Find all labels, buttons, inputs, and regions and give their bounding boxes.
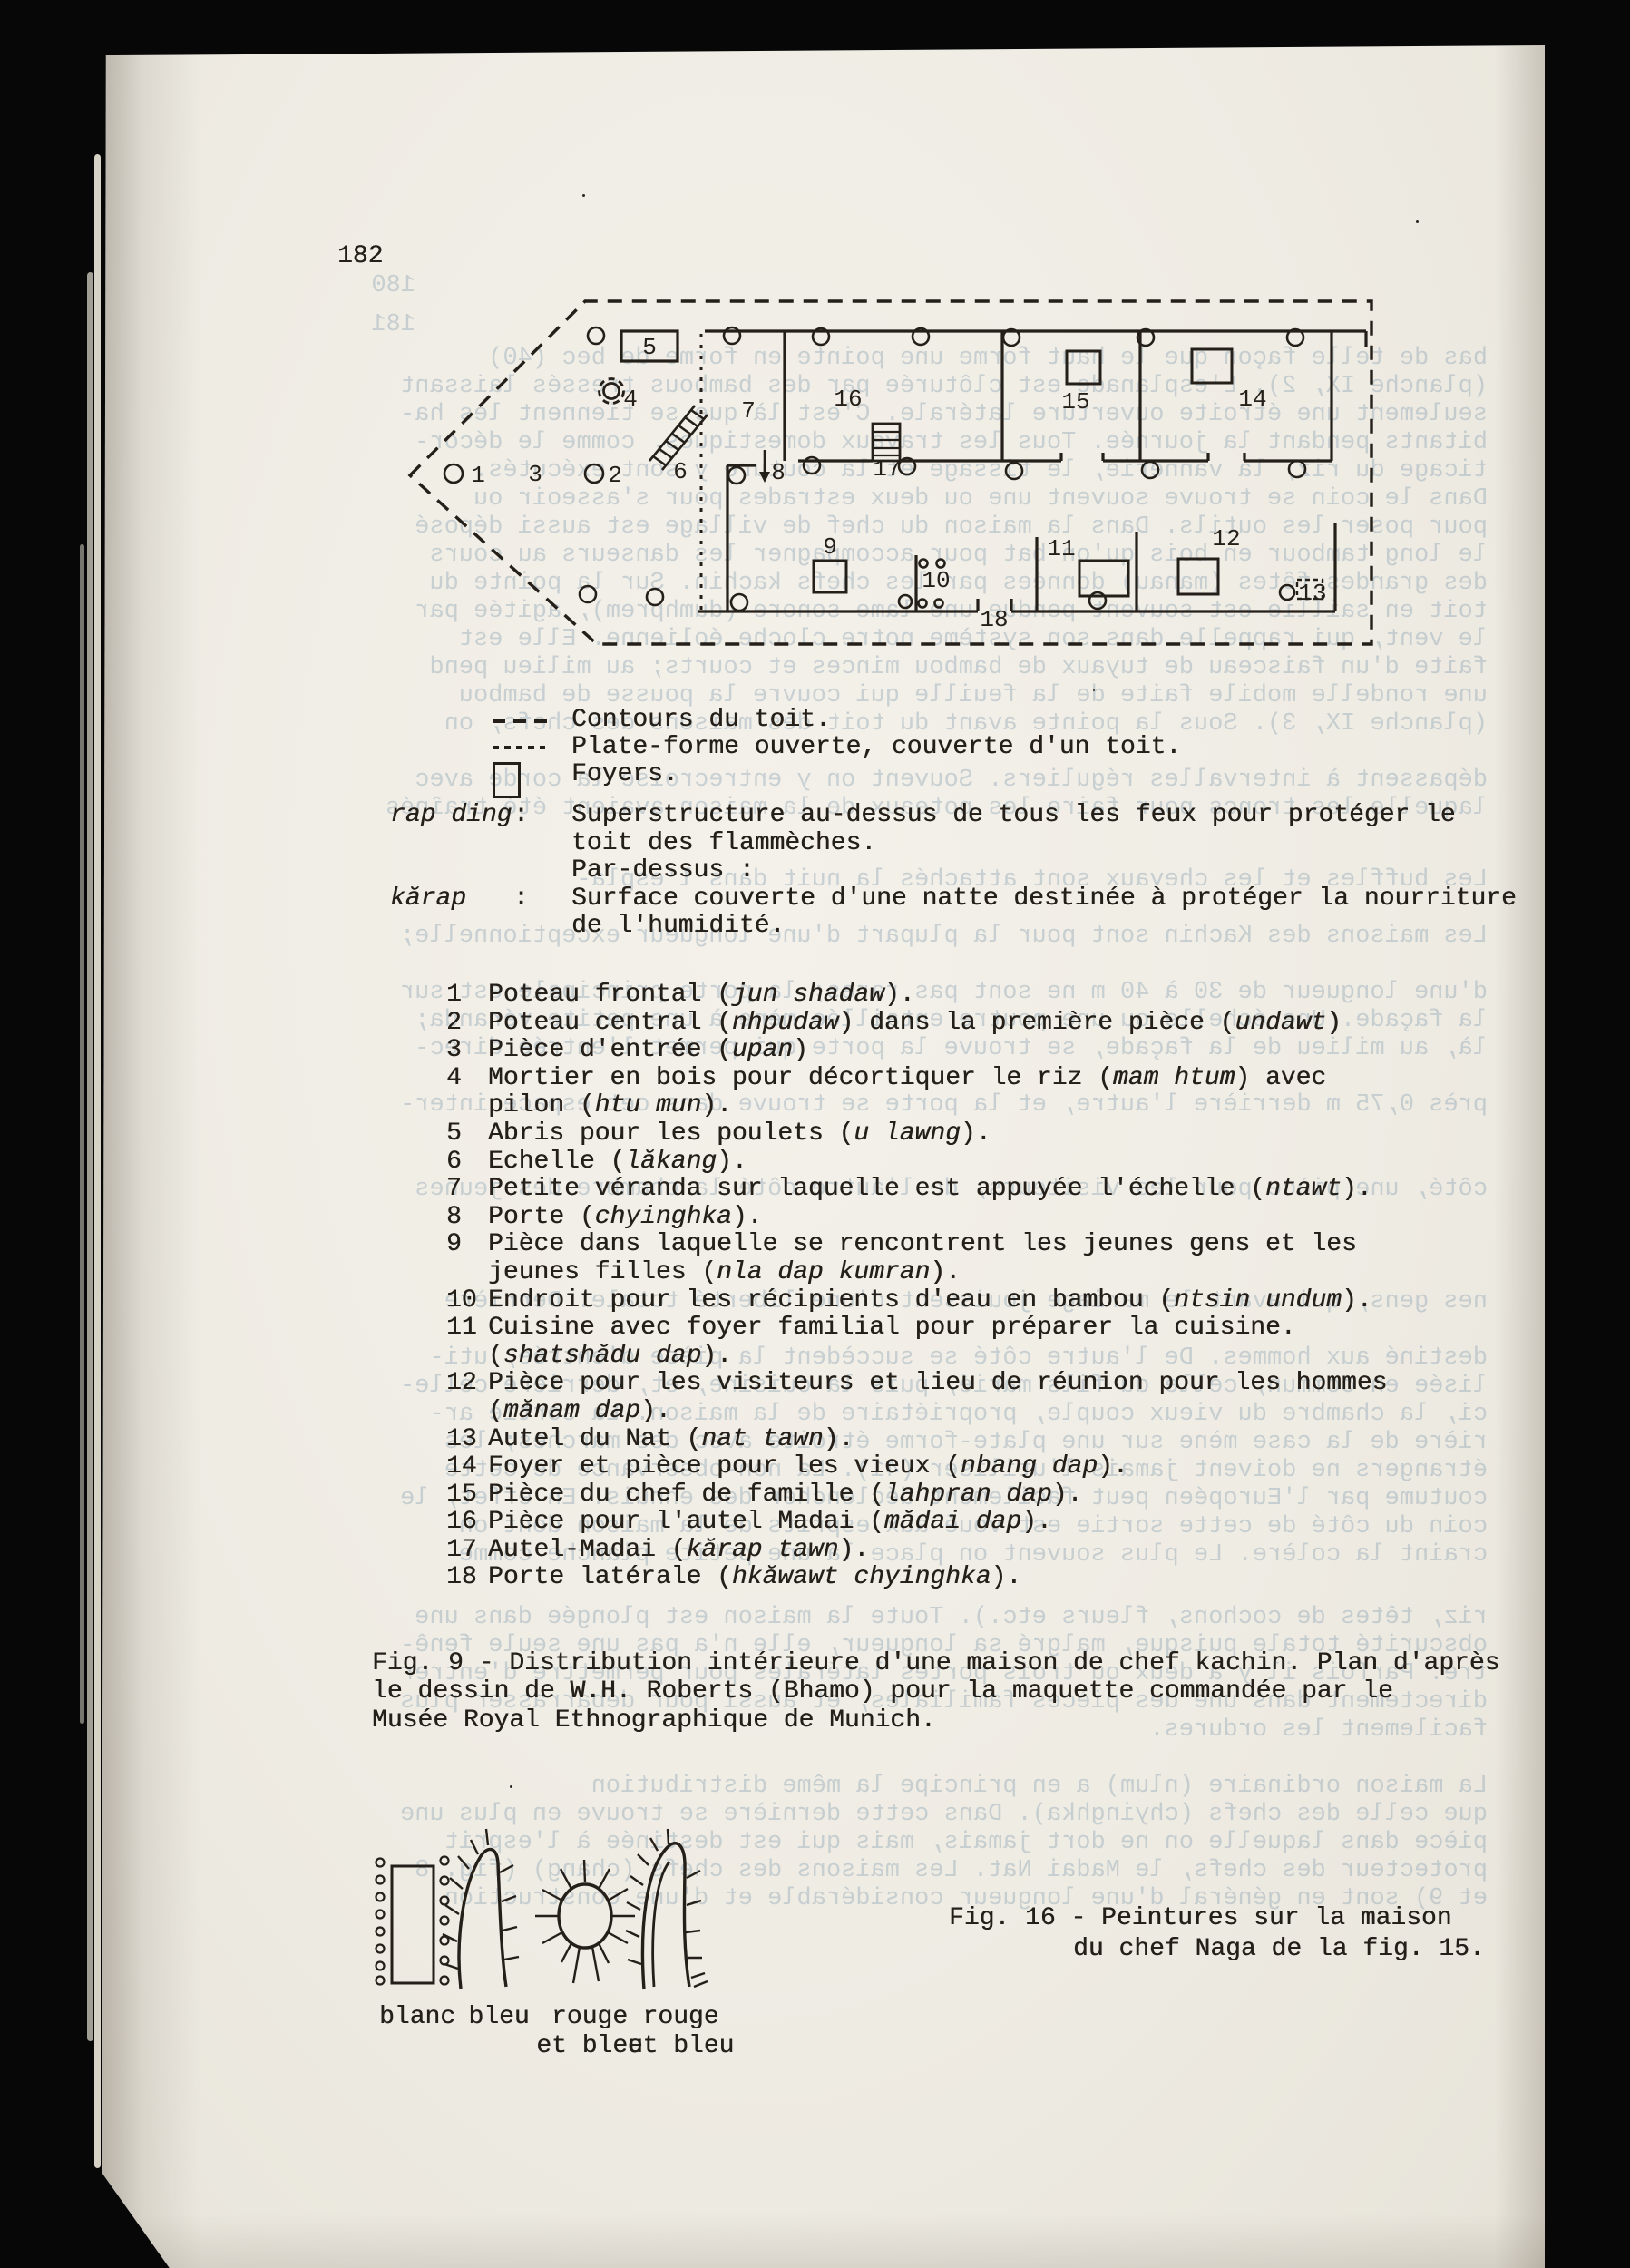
term-def-line: Par-dessus :	[571, 857, 1456, 885]
legend-item-number: 4	[446, 1065, 477, 1093]
term-def-line: de l'humidité.	[571, 913, 1517, 941]
legend-item-text: Poteau central (nhpudaw) dans la premièr…	[488, 1010, 1342, 1038]
legend-item-text: (mănam dap).	[488, 1398, 671, 1426]
symbol-legend: Contours du toit. Plate-forme ouverte, c…	[493, 707, 1490, 803]
caption-line: Fig. 9 - Distribution intérieure d'une m…	[372, 1649, 1515, 1677]
hearth-room12	[1178, 559, 1218, 594]
platform-dash-symbol	[493, 746, 558, 749]
legend-item-number: 3	[446, 1037, 477, 1065]
legend-item-row: 2Poteau central (nhpudaw) dans la premiè…	[446, 1010, 1517, 1038]
legend-item-text: Autel du Nat (nat tawn).	[488, 1426, 854, 1454]
legend-item-number	[446, 1343, 477, 1371]
legend-item-number	[446, 1092, 477, 1120]
legend-item-number: 5	[446, 1120, 477, 1149]
legend-item-row: 12Pièce pour les visiteurs et lieu de ré…	[446, 1370, 1517, 1398]
plan-number-12: 12	[1212, 525, 1240, 552]
plan-number-4: 4	[623, 386, 638, 413]
legend-item-text: Cuisine avec foyer familial pour prépare…	[488, 1315, 1296, 1343]
legend-row-hearth: Foyers.	[493, 761, 1490, 803]
legend-label: Foyers.	[571, 761, 678, 789]
legend-item-row: 1Poteau frontal (jun shadaw).	[446, 982, 1517, 1010]
plan-number-16: 16	[834, 386, 862, 413]
legend-item-row: 16Pièce pour l'autel Madai (mădai dap).	[446, 1509, 1517, 1537]
caption-line: Musée Royal Ethnographique de Munich.	[372, 1706, 1515, 1735]
fig16-caption-line2: du chef Naga de la fig. 15.	[1073, 1936, 1485, 1964]
term-row-karap: kărap : Surface couverte d'une natte des…	[390, 885, 1497, 941]
legend-item-number: 18	[446, 1564, 477, 1592]
term-legend: rap ding : Superstructure au-dessus de t…	[390, 802, 1497, 941]
legend-item-text: Petite véranda sur laquelle est appuyée …	[488, 1176, 1372, 1204]
legend-item-number: 6	[446, 1149, 477, 1177]
legend-item-number: 7	[446, 1176, 477, 1204]
legend-item-row: 17Autel-Madai (kărap tawn).	[446, 1537, 1517, 1565]
motif-rouge-bleu-oval	[535, 1860, 635, 1983]
legend-item-row: 10Endroit pour les récipients d'eau en b…	[446, 1287, 1517, 1315]
legend-item-text: Echelle (lăkang).	[488, 1149, 747, 1177]
plan-number-6: 6	[673, 458, 688, 485]
legend-item-row: 7Petite véranda sur laquelle est appuyée…	[446, 1176, 1517, 1204]
legend-item-number: 13	[446, 1426, 477, 1454]
legend-item-text: Porte (chyinghka).	[488, 1204, 762, 1232]
fig16-caption-line1: Fig. 16 - Peintures sur la maison	[949, 1905, 1452, 1933]
legend-item-text: Pièce pour les visiteurs et lieu de réun…	[488, 1370, 1387, 1398]
legend-item-number: 2	[446, 1010, 477, 1038]
legend-label: Plate-forme ouverte, couverte d'un toit.	[571, 734, 1181, 762]
fig9-caption: Fig. 9 - Distribution intérieure d'une m…	[372, 1649, 1515, 1735]
legend-item-number: 16	[446, 1509, 477, 1537]
term-row-rap-ding: rap ding : Superstructure au-dessus de t…	[390, 802, 1497, 885]
term-def-line: Superstructure au-dessus de tous les feu…	[571, 802, 1456, 830]
hearth-room14	[1192, 349, 1232, 383]
legend-item-row: 14Foyer et pièce pour les vieux (nbang d…	[446, 1453, 1517, 1481]
term-word: rap ding	[390, 802, 513, 830]
legend-item-text: Porte latérale (hkăwawt chyinghka).	[488, 1564, 1021, 1592]
legend-item-text: Autel-Madai (kărap tawn).	[488, 1537, 869, 1565]
legend-item-row: 11Cuisine avec foyer familial pour prépa…	[446, 1315, 1517, 1343]
house-walls	[698, 331, 1366, 611]
plan-number-14: 14	[1238, 386, 1266, 413]
legend-label: Contours du toit.	[571, 707, 831, 735]
numbered-legend-list: 1Poteau frontal (jun shadaw).2Poteau cen…	[446, 982, 1517, 1592]
legend-item-text: Pièce dans laquelle se rencontrent les j…	[488, 1231, 1357, 1259]
legend-item-row: 6Echelle (lăkang).	[446, 1149, 1517, 1177]
motif-label-rouge-bleu-2: rouge et bleu	[620, 2003, 742, 2061]
term-word: kărap	[390, 885, 513, 914]
hearth-room11	[1079, 561, 1128, 596]
legend-item-text: Mortier en bois pour décortiquer le riz …	[488, 1065, 1326, 1093]
legend-item-number: 17	[446, 1537, 477, 1565]
legend-item-row: (shatshădu dap).	[446, 1343, 1517, 1371]
plan-number-15: 15	[1061, 388, 1089, 415]
plan-number-5: 5	[642, 334, 657, 361]
legend-item-number	[446, 1259, 477, 1287]
plan-number-10: 10	[922, 567, 950, 594]
legend-item-number	[446, 1398, 477, 1426]
hearth-room15	[1067, 351, 1100, 384]
legend-item-text: Endroit pour les récipients d'eau en bam…	[488, 1287, 1372, 1315]
term-colon: :	[513, 885, 571, 914]
legend-item-number: 10	[446, 1287, 477, 1315]
legend-item-text: (shatshădu dap).	[488, 1343, 732, 1371]
legend-item-text: jeunes filles (nla dap kumran).	[488, 1259, 961, 1287]
motif-rouge-bleu-hook	[626, 1829, 708, 1989]
legend-item-row: pilon (htu mun).	[446, 1092, 1517, 1120]
legend-item-row: (mănam dap).	[446, 1398, 1517, 1426]
legend-item-text: Pièce d'entrée (upan)	[488, 1037, 808, 1065]
plan-number-3: 3	[528, 461, 542, 488]
legend-item-text: Poteau frontal (jun shadaw).	[488, 982, 914, 1010]
fig9-floor-plan: 123456789101112131415161718	[299, 263, 1433, 671]
legend-item-text: Abris pour les poulets (u lawng).	[488, 1120, 991, 1149]
legend-item-number: 11	[446, 1315, 477, 1343]
legend-item-text: Pièce pour l'autel Madai (mădai dap).	[488, 1509, 1052, 1537]
legend-item-text: Pièce du chef de famille (lahpran dap).	[488, 1481, 1082, 1510]
scanned-book-page: 180181bas de telle façon que le haut for…	[0, 0, 1630, 2268]
legend-item-number: 15	[446, 1481, 477, 1510]
legend-item-row: 4Mortier en bois pour décortiquer le riz…	[446, 1065, 1517, 1093]
term-definition: Surface couverte d'une natte destinée à …	[571, 885, 1517, 941]
legend-item-row: jeunes filles (nla dap kumran).	[446, 1259, 1517, 1287]
mortar-inner-circle	[604, 384, 620, 399]
legend-item-row: 5Abris pour les poulets (u lawng).	[446, 1120, 1517, 1149]
plan-number-17: 17	[873, 455, 901, 483]
term-def-line: Surface couverte d'une natte destinée à …	[571, 885, 1517, 914]
term-definition: Superstructure au-dessus de tous les feu…	[571, 802, 1456, 885]
legend-item-row: 3Pièce d'entrée (upan)	[446, 1037, 1517, 1065]
legend-item-row: 9Pièce dans laquelle se rencontrent les …	[446, 1231, 1517, 1259]
legend-item-row: 13Autel du Nat (nat tawn).	[446, 1426, 1517, 1454]
hearth-room9	[814, 561, 846, 592]
motif-blanc	[376, 1857, 449, 1985]
plan-number-7: 7	[741, 397, 756, 425]
plan-number-labels: 123456789101112131415161718	[471, 334, 1326, 633]
legend-item-number: 14	[446, 1453, 477, 1481]
legend-item-row: 18Porte latérale (hkăwawt chyinghka).	[446, 1564, 1517, 1592]
book-page-edge	[80, 544, 84, 1724]
plan-number-1: 1	[471, 462, 485, 489]
legend-item-text: pilon (htu mun).	[488, 1092, 732, 1120]
plan-number-8: 8	[771, 459, 786, 486]
plan-number-13: 13	[1298, 580, 1326, 607]
legend-item-number: 1	[446, 982, 477, 1010]
term-colon: :	[513, 802, 571, 830]
door-arrow	[759, 450, 770, 483]
legend-item-number: 9	[446, 1231, 477, 1259]
plan-number-18: 18	[980, 606, 1008, 633]
roof-dash-symbol	[493, 719, 558, 723]
caption-line: le dessin de W.H. Roberts (Bhamo) pour l…	[372, 1677, 1515, 1706]
plan-number-9: 9	[823, 533, 837, 561]
book-page-edge	[94, 154, 101, 2168]
motif-bleu	[443, 1829, 519, 1989]
legend-item-text: Foyer et pièce pour les vieux (nbang dap…	[488, 1453, 1128, 1481]
plan-number-11: 11	[1047, 535, 1075, 562]
book-page-edge	[87, 272, 93, 2041]
legend-item-row: 15Pièce du chef de famille (lahpran dap)…	[446, 1481, 1517, 1510]
legend-item-number: 12	[446, 1370, 477, 1398]
square-symbol	[493, 761, 558, 798]
plan-number-2: 2	[608, 462, 622, 489]
term-def-line: toit des flammèches.	[571, 830, 1456, 858]
legend-row-platform: Plate-forme ouverte, couverte d'un toit.	[493, 734, 1490, 761]
legend-item-number: 8	[446, 1204, 477, 1232]
legend-item-row: 8Porte (chyinghka).	[446, 1204, 1517, 1232]
legend-row-roof: Contours du toit.	[493, 707, 1490, 734]
